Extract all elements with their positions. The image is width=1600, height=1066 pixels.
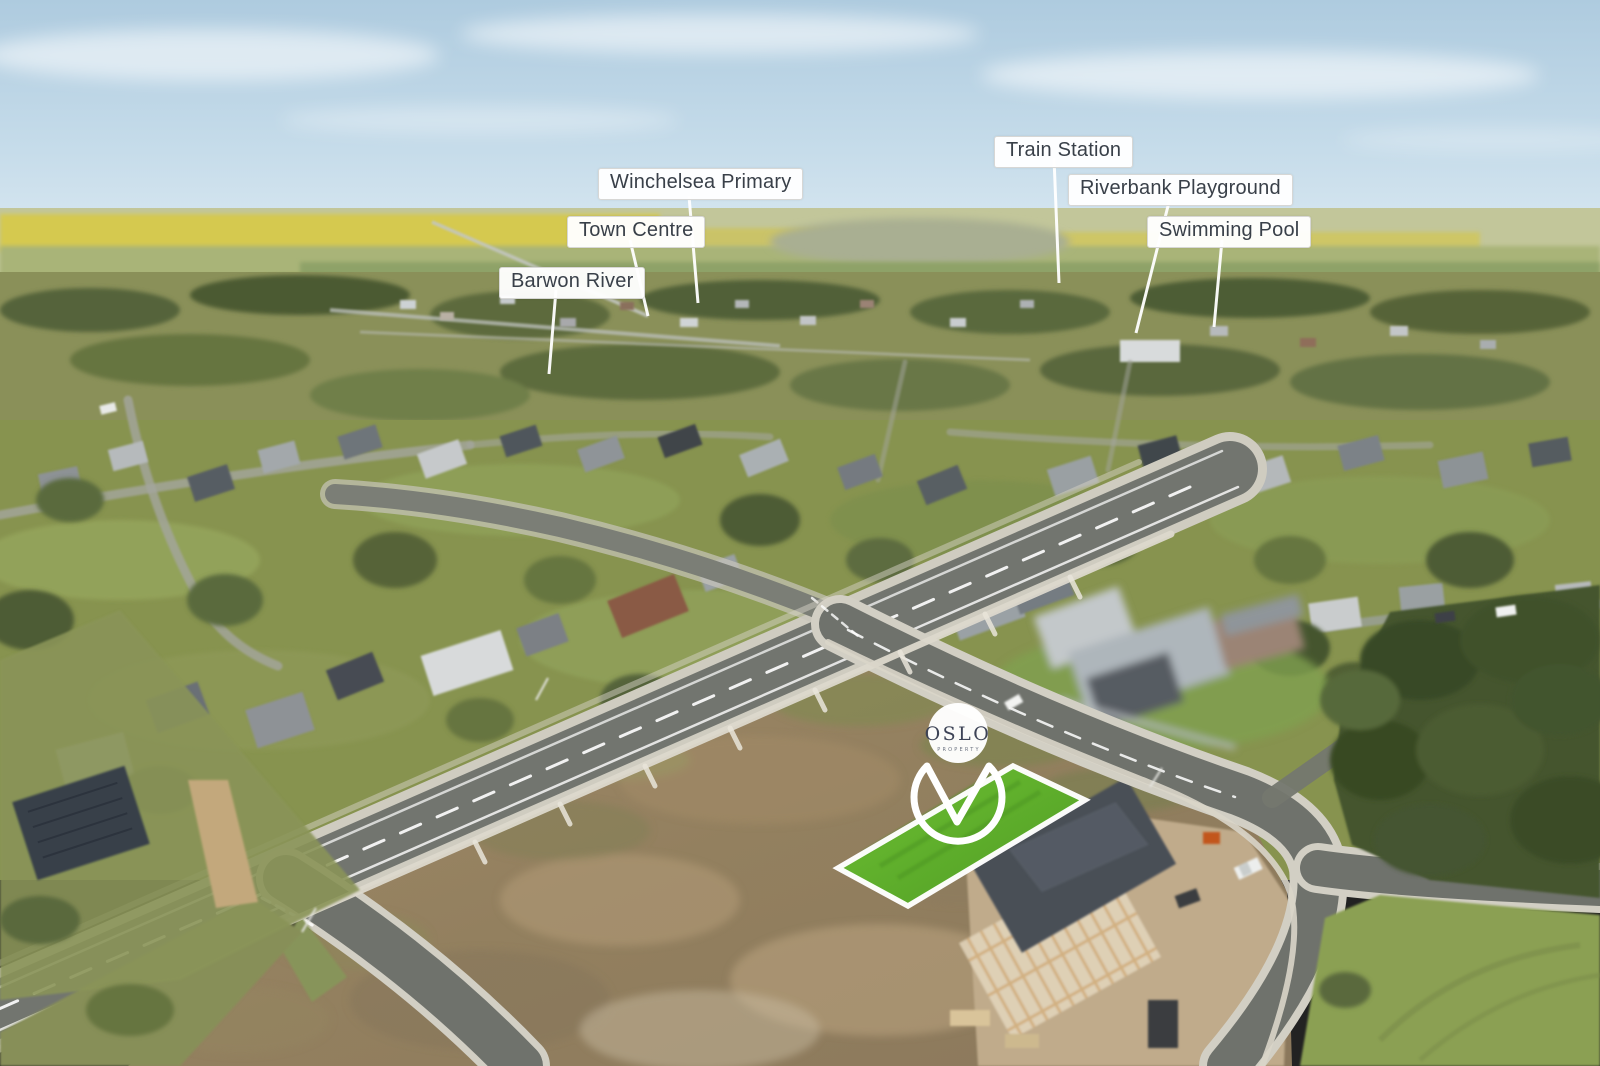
aerial-locality-photo: OSLO PROPERTY Barwon River Town Centre W… [0, 0, 1600, 1066]
aerial-scene: OSLO PROPERTY [0, 0, 1600, 1066]
label-winchelsea-primary: Winchelsea Primary [598, 168, 803, 200]
label-swimming-pool: Swimming Pool [1147, 216, 1311, 248]
label-town-centre: Town Centre [567, 216, 705, 248]
pin-brand-text: OSLO [925, 723, 992, 745]
label-riverbank-playground: Riverbank Playground [1068, 174, 1293, 206]
label-barwon-river: Barwon River [499, 267, 645, 299]
grass-field-bottom-right [1300, 895, 1600, 1066]
pin-sub-text: PROPERTY [937, 747, 980, 753]
label-train-station: Train Station [994, 136, 1133, 168]
